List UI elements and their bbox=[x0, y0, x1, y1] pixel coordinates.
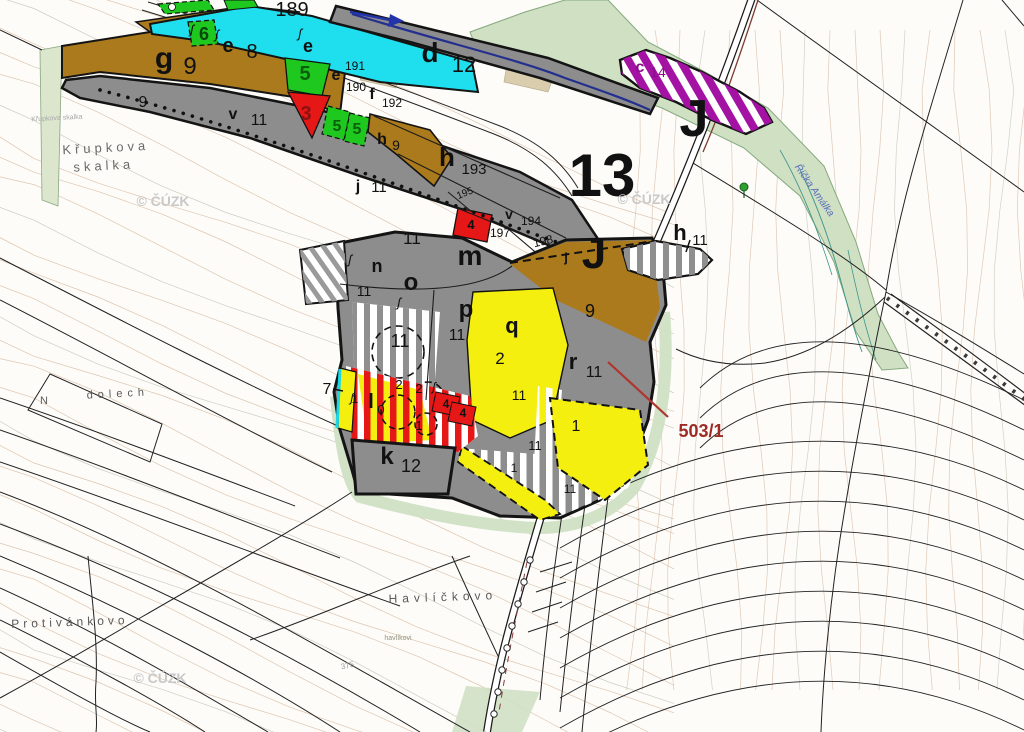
parcel-number-5c: 5 bbox=[353, 121, 362, 138]
parcel-number-q2: 2 bbox=[495, 349, 504, 368]
parcel-letter-e3: e bbox=[332, 67, 341, 84]
annotation-503-1: 503/1 bbox=[678, 421, 723, 441]
parcel-letter-n: n bbox=[372, 256, 383, 276]
parcel-number-189: 189 bbox=[275, 0, 308, 21]
parcel-number-1l: 1 bbox=[415, 418, 422, 433]
parcel-number-1yellow: 1 bbox=[572, 418, 581, 435]
parcel-number-r11: 11 bbox=[586, 364, 603, 381]
zone-letter-J-1: J bbox=[680, 90, 709, 148]
parcel-number-11b: 11 bbox=[528, 438, 542, 453]
cadastral-map-view: g9e86189e53e191190f19255h9d12h193195v194… bbox=[0, 0, 1024, 732]
parcel-number-6: 6 bbox=[199, 24, 209, 44]
parcel-number-9path: 9 bbox=[139, 94, 148, 111]
parcel-number-190: 190 bbox=[346, 80, 366, 94]
parcel-letter-o: o bbox=[404, 269, 419, 296]
vegetation-strip-left bbox=[40, 46, 62, 206]
parcel-letter-h193: h bbox=[439, 142, 455, 172]
parcel-white-dot bbox=[169, 4, 176, 11]
parcel-letter-f: f bbox=[369, 86, 375, 103]
parcel-number-11c: 11 bbox=[564, 482, 577, 496]
parcel-letter-r: r bbox=[569, 349, 578, 374]
parcel-number-h9: 9 bbox=[392, 137, 400, 153]
parcel-letter-q: q bbox=[505, 313, 518, 338]
parcel-number-2a: 2 bbox=[395, 377, 402, 392]
parcel-number-h11: 11 bbox=[692, 232, 708, 249]
parcel-number-l0: 0 bbox=[377, 402, 384, 417]
watermark-cuzk-3: © ČÚZK bbox=[133, 669, 186, 686]
parcel-letter-m: m bbox=[458, 240, 483, 271]
parcel-complex-central bbox=[300, 232, 666, 520]
parcel-letter-j-small: j bbox=[563, 250, 568, 265]
parcel-number-n11: 11 bbox=[357, 283, 372, 299]
parcel-letter-d: d bbox=[421, 37, 438, 68]
parcel-letter-g: g bbox=[155, 42, 173, 75]
parcel-number-j11: 11 bbox=[371, 179, 387, 196]
parcel-n-hatch-overlay bbox=[300, 241, 348, 304]
parcel-number-p11: 11 bbox=[449, 327, 466, 344]
parcel-number-194: 194 bbox=[521, 214, 541, 228]
tree-icon bbox=[740, 183, 748, 191]
parcel-number-v11: 11 bbox=[251, 112, 268, 129]
parcel-number-192: 192 bbox=[382, 96, 402, 110]
parcel-number-e8: 8 bbox=[246, 41, 257, 63]
parcel-letter-v194: v bbox=[505, 206, 513, 222]
parcel-letter-l: l bbox=[368, 391, 374, 413]
parcel-letter-k: k bbox=[380, 443, 394, 470]
parcel-letter-e: e bbox=[222, 35, 233, 57]
parcel-number-m11: 11 bbox=[403, 229, 421, 248]
parcel-letter-p: p bbox=[459, 296, 474, 323]
parcel-letter-j: j bbox=[355, 178, 360, 195]
parcel-number-7: 7 bbox=[323, 381, 332, 398]
parcel-number-4b: 4 bbox=[460, 406, 467, 420]
watermark-cuzk-1: © ČÚZK bbox=[136, 192, 189, 209]
parcel-number-191: 191 bbox=[345, 59, 365, 73]
parcel-letter-e2: e bbox=[303, 36, 313, 56]
parcel-letter-h9: h bbox=[377, 131, 387, 148]
tiny-label-havlikovi: havlíkovi bbox=[384, 635, 412, 642]
parcel-number-5b: 5 bbox=[333, 118, 342, 135]
parcel-number-g9: 9 bbox=[183, 53, 196, 80]
place-name-skalka: skalka bbox=[73, 156, 135, 174]
parcel-number-9strip: 9 bbox=[585, 301, 595, 321]
parcel-number-1b: 1 bbox=[511, 461, 518, 475]
parcel-number-k12: 12 bbox=[401, 456, 421, 476]
map-canvas: g9e86189e53e191190f19255h9d12h193195v194… bbox=[0, 0, 1024, 732]
zone-letter-J-2: J bbox=[582, 229, 606, 278]
parcel-number-3: 3 bbox=[300, 103, 311, 125]
parcel-number-5a: 5 bbox=[299, 63, 310, 85]
parcel-number-11a: 11 bbox=[512, 387, 527, 403]
parcel-letter-c: c bbox=[636, 59, 645, 76]
parcel-number-2b: 2 bbox=[415, 381, 422, 396]
parcel-letter-v: v bbox=[229, 106, 238, 123]
parcel-number-d12: 12 bbox=[452, 52, 476, 77]
watermark-cuzk-2: © ČÚZK bbox=[617, 190, 670, 207]
parcel-number-o11: 11 bbox=[391, 331, 410, 351]
place-name-n: N bbox=[40, 395, 48, 407]
parcel-number-193: 193 bbox=[461, 161, 486, 178]
parcel-number-c14: 14 bbox=[650, 64, 666, 80]
parcel-number-4red: 4 bbox=[467, 217, 475, 232]
parcel-number-197: 197 bbox=[490, 226, 510, 240]
parcel-letter-h11: h bbox=[673, 220, 686, 245]
parcel-number-4a: 4 bbox=[443, 397, 450, 411]
